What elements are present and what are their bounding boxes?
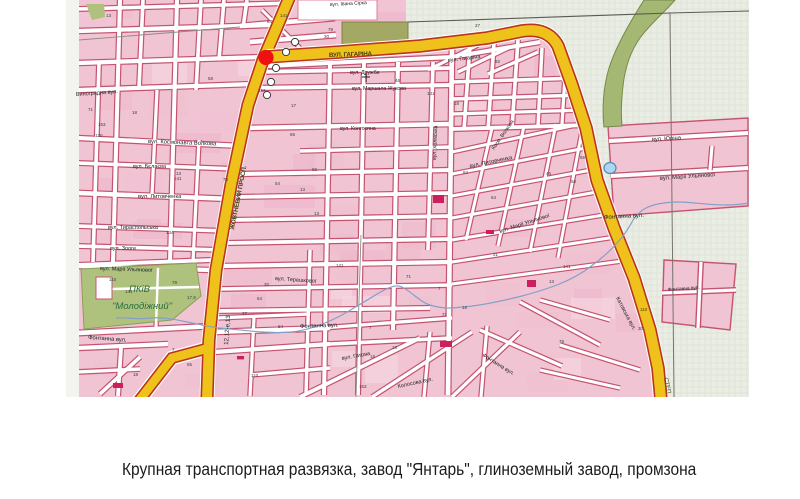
svg-text:18: 18 xyxy=(454,101,460,106)
svg-text:54: 54 xyxy=(275,181,281,186)
svg-text:17,9: 17,9 xyxy=(187,295,196,300)
svg-text:141: 141 xyxy=(125,289,133,294)
svg-text:21: 21 xyxy=(493,252,499,257)
svg-text:вул. Зооге: вул. Зооге xyxy=(110,246,136,252)
svg-text:153: 153 xyxy=(98,122,106,127)
svg-text:64: 64 xyxy=(257,296,263,301)
svg-text:71: 71 xyxy=(442,312,448,317)
svg-text:вул. Маршала Жукова: вул. Маршала Жукова xyxy=(352,86,406,92)
svg-text:134: 134 xyxy=(166,230,174,235)
svg-text:вул. Тираспольська: вул. Тираспольська xyxy=(108,225,159,231)
svg-text:вул. Бєлаєва: вул. Бєлаєва xyxy=(133,164,167,170)
svg-text:64: 64 xyxy=(491,195,497,200)
svg-text:46: 46 xyxy=(395,78,401,83)
svg-text:58: 58 xyxy=(208,76,214,81)
svg-text:13: 13 xyxy=(314,211,320,216)
svg-text:13: 13 xyxy=(549,279,555,284)
svg-text:30: 30 xyxy=(264,282,270,287)
svg-text:110: 110 xyxy=(109,277,117,282)
svg-text:вул. Холмська: вул. Холмська xyxy=(432,125,439,160)
svg-text:79: 79 xyxy=(328,27,334,32)
svg-text:141: 141 xyxy=(174,176,182,181)
svg-text:84: 84 xyxy=(463,170,469,175)
svg-text:18: 18 xyxy=(462,305,468,310)
svg-text:79: 79 xyxy=(223,177,229,182)
svg-text:30: 30 xyxy=(324,34,330,39)
svg-text:110: 110 xyxy=(251,373,259,378)
svg-text:141: 141 xyxy=(336,263,344,268)
svg-text:86: 86 xyxy=(290,132,296,137)
svg-text:141: 141 xyxy=(280,13,288,18)
svg-text:141: 141 xyxy=(563,264,571,269)
svg-text:92: 92 xyxy=(495,59,501,64)
svg-text:27: 27 xyxy=(242,311,248,316)
svg-text:153: 153 xyxy=(359,384,367,389)
svg-text:18: 18 xyxy=(132,110,138,115)
svg-text:17: 17 xyxy=(291,103,297,108)
svg-text:18: 18 xyxy=(370,354,376,359)
svg-text:13: 13 xyxy=(300,187,306,192)
svg-text:54: 54 xyxy=(278,324,284,329)
svg-text:120: 120 xyxy=(95,133,103,138)
svg-text:58: 58 xyxy=(580,155,586,160)
svg-text:141: 141 xyxy=(427,91,435,96)
svg-text:71: 71 xyxy=(406,274,412,279)
svg-text:79: 79 xyxy=(559,339,565,344)
svg-text:13: 13 xyxy=(392,345,398,350)
svg-text:92: 92 xyxy=(312,167,318,172)
svg-text:110: 110 xyxy=(640,307,648,312)
svg-text:13: 13 xyxy=(106,13,112,18)
svg-text:46: 46 xyxy=(546,171,552,176)
svg-text:18: 18 xyxy=(133,372,139,377)
svg-text:58: 58 xyxy=(571,179,577,184)
svg-text:71: 71 xyxy=(88,107,94,112)
svg-text:вул. Литовченка: вул. Литовченка xyxy=(138,194,182,200)
svg-text:"Молодіжний": "Молодіжний" xyxy=(112,301,173,312)
svg-text:79: 79 xyxy=(172,280,178,285)
svg-text:64: 64 xyxy=(267,19,273,24)
svg-text:65: 65 xyxy=(187,362,193,367)
svg-text:153: 153 xyxy=(258,88,266,93)
svg-text:вул. Колгоспна: вул. Колгоспна xyxy=(340,126,376,132)
svg-text:30: 30 xyxy=(638,326,644,331)
svg-text:27: 27 xyxy=(475,23,481,28)
svg-text:вул. Дружби: вул. Дружби xyxy=(350,70,380,76)
